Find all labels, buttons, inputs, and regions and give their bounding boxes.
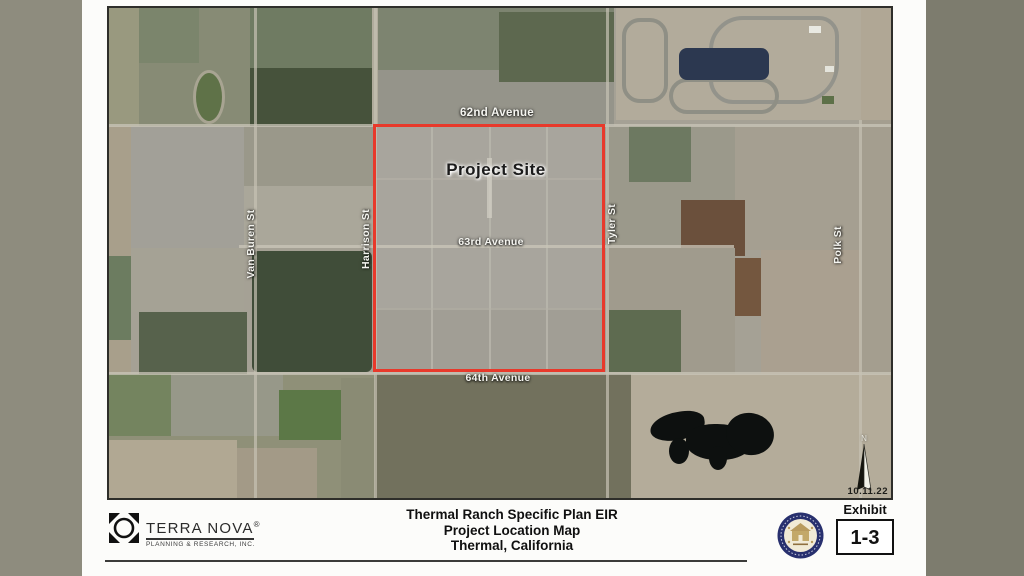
map-patch xyxy=(279,390,341,440)
terra-nova-logo-icon xyxy=(108,512,140,544)
street-label-van-buren: Van Buren St xyxy=(244,204,258,284)
north-arrow: N xyxy=(853,434,875,492)
project-site-label: Project Site xyxy=(406,160,586,180)
street-label-64th-avenue: 64th Avenue xyxy=(428,372,568,384)
map-patch xyxy=(109,374,171,436)
map-patch xyxy=(825,66,834,72)
exhibit-title-block: Thermal Ranch Specific Plan EIR Project … xyxy=(312,507,712,554)
racetrack-curve xyxy=(622,18,668,103)
pond xyxy=(669,438,689,464)
exhibit-number-box: 1-3 xyxy=(836,519,894,555)
footer-divider xyxy=(105,560,747,562)
letterbox-left xyxy=(0,0,82,576)
title-line-2: Project Location Map xyxy=(312,523,712,539)
exhibit-page: 62nd Avenue Project Site 63rd Avenue 64t… xyxy=(82,0,926,576)
exhibit-label: Exhibit xyxy=(833,502,897,517)
exhibit-block: Exhibit 1-3 xyxy=(833,502,897,555)
map-patch xyxy=(499,12,614,82)
street-label-harrison: Harrison St xyxy=(359,199,373,279)
map-patch xyxy=(250,8,372,68)
terra-nova-name: TERRA NOVA® xyxy=(146,520,261,537)
map-patch xyxy=(761,250,861,374)
registered-mark: ® xyxy=(254,520,261,529)
north-arrow-icon xyxy=(853,443,875,491)
map-patch xyxy=(244,126,375,186)
terra-nova-tagline: PLANNING & RESEARCH, INC. xyxy=(146,538,254,548)
map-patch xyxy=(109,440,237,498)
pond xyxy=(709,446,727,470)
map-patch xyxy=(171,374,283,436)
map-patch xyxy=(861,120,891,374)
county-seal-icon xyxy=(776,511,825,560)
letterbox-right xyxy=(926,0,1024,576)
map-patch xyxy=(237,448,317,498)
map-date: 10.11.22 xyxy=(848,486,888,497)
map-patch xyxy=(139,8,199,63)
map-patch xyxy=(822,96,834,104)
logo-name-text: TERRA NOVA xyxy=(146,520,254,537)
map-patch xyxy=(341,378,375,498)
map-patch xyxy=(109,8,139,126)
exhibit-number: 1-3 xyxy=(838,521,892,555)
map-patch xyxy=(131,126,244,248)
map-patch xyxy=(139,312,247,374)
title-line-3: Thermal, California xyxy=(312,538,712,554)
map-patch xyxy=(131,248,244,312)
map-patch xyxy=(809,26,821,33)
north-letter: N xyxy=(853,434,875,443)
street-label-63rd-avenue: 63rd Avenue xyxy=(421,236,561,248)
map-patch xyxy=(629,126,691,182)
map-patch xyxy=(861,8,891,120)
map-patch xyxy=(244,186,375,248)
aerial-map: 62nd Avenue Project Site 63rd Avenue 64t… xyxy=(107,6,893,500)
slide-stage: 62nd Avenue Project Site 63rd Avenue 64t… xyxy=(0,0,1024,576)
map-patch xyxy=(109,256,131,340)
street-label-tyler: Tyler St xyxy=(605,184,619,264)
racetrack-lake xyxy=(679,48,769,80)
racetrack-curve xyxy=(669,78,779,114)
sports-field-patch xyxy=(193,70,225,124)
map-patch xyxy=(250,68,372,126)
title-line-1: Thermal Ranch Specific Plan EIR xyxy=(312,507,712,523)
street-label-62nd-avenue: 62nd Avenue xyxy=(427,107,567,119)
map-patch xyxy=(609,310,681,372)
map-patch xyxy=(252,251,372,372)
street-label-polk: Polk St xyxy=(831,205,845,285)
map-patch xyxy=(375,374,631,498)
